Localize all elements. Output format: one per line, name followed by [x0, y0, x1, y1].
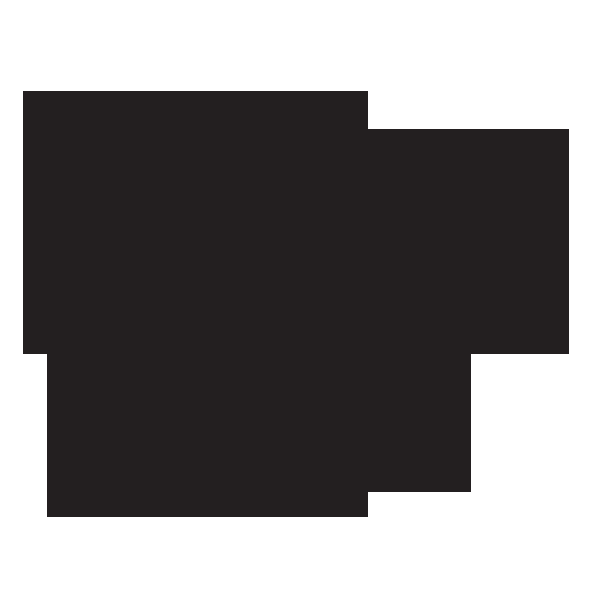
silhouette-canvas [0, 0, 600, 600]
canvas [0, 0, 600, 600]
silhouette-shape [23, 91, 569, 517]
